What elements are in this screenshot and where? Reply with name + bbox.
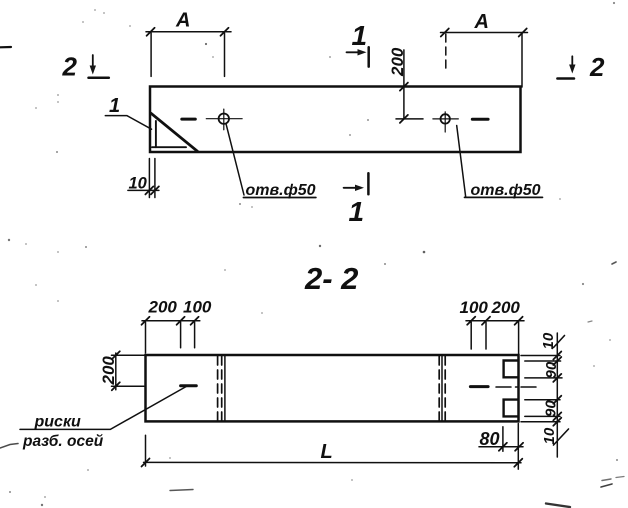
svg-text:2: 2	[589, 52, 605, 82]
svg-text:100: 100	[183, 298, 212, 317]
svg-text:риски: риски	[34, 414, 82, 431]
svg-text:2- 2: 2- 2	[304, 261, 358, 296]
svg-text:90: 90	[543, 361, 560, 378]
svg-text:1: 1	[109, 95, 120, 117]
svg-text:A: A	[175, 10, 190, 32]
svg-text:разб. осей: разб. осей	[22, 433, 104, 450]
svg-text:90: 90	[543, 400, 560, 417]
svg-text:200: 200	[148, 298, 178, 317]
svg-text:1: 1	[349, 196, 365, 227]
svg-text:200: 200	[491, 298, 521, 317]
svg-text:10: 10	[540, 332, 557, 349]
svg-text:100: 100	[460, 298, 489, 317]
svg-text:A: A	[474, 11, 489, 33]
svg-text:L: L	[321, 441, 333, 463]
svg-text:отв.ф50: отв.ф50	[471, 182, 541, 199]
svg-text:1: 1	[352, 20, 368, 51]
svg-text:10: 10	[129, 175, 148, 193]
svg-text:отв.ф50: отв.ф50	[246, 182, 316, 199]
svg-text:2: 2	[62, 52, 78, 82]
svg-text:80: 80	[480, 429, 500, 449]
svg-text:10: 10	[541, 427, 558, 444]
svg-text:200: 200	[99, 356, 118, 386]
svg-text:200: 200	[388, 47, 407, 77]
